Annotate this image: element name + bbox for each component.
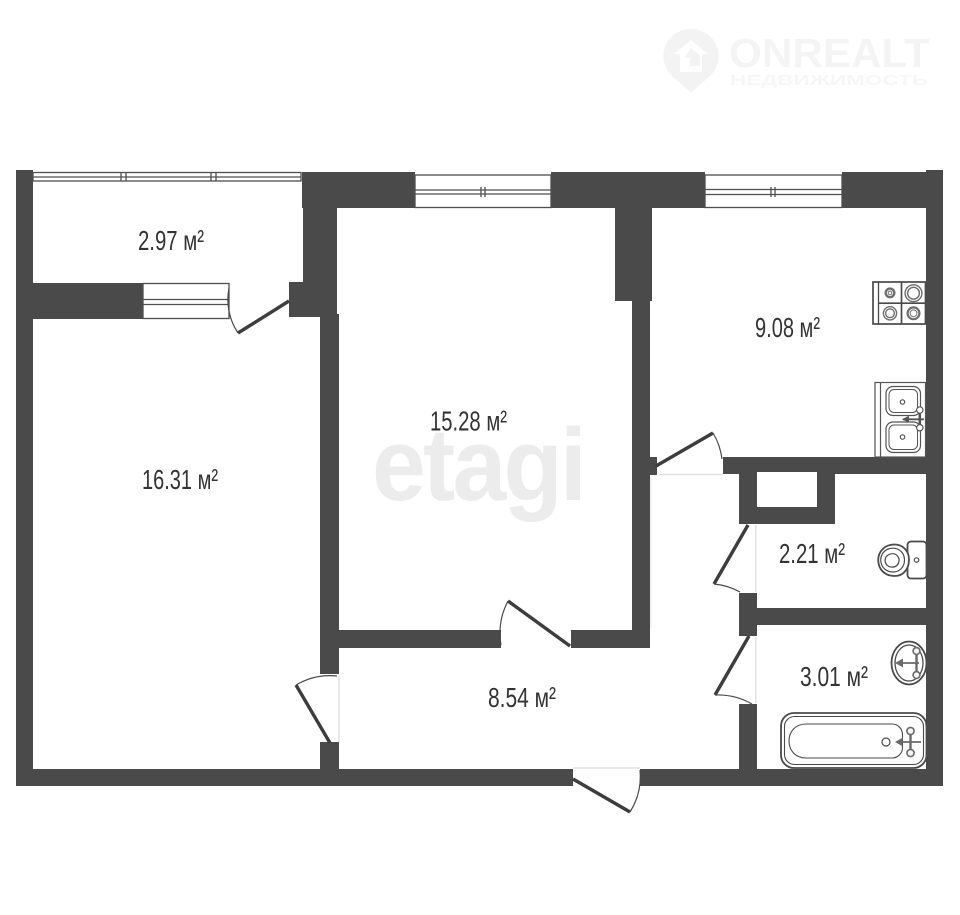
svg-text:3.01 м²: 3.01 м² (800, 661, 868, 692)
svg-text:ONREALT: ONREALT (729, 30, 930, 76)
svg-text:2.21 м²: 2.21 м² (779, 538, 845, 569)
svg-text:8.54 м²: 8.54 м² (488, 682, 556, 713)
svg-text:16.31 м²: 16.31 м² (142, 464, 218, 495)
svg-text:НЕДВИЖИМОСТЬ: НЕДВИЖИМОСТЬ (730, 72, 928, 89)
svg-text:9.08 м²: 9.08 м² (755, 312, 820, 343)
svg-text:2.97 м²: 2.97 м² (138, 225, 204, 256)
svg-text:15.28 м²: 15.28 м² (430, 406, 507, 437)
